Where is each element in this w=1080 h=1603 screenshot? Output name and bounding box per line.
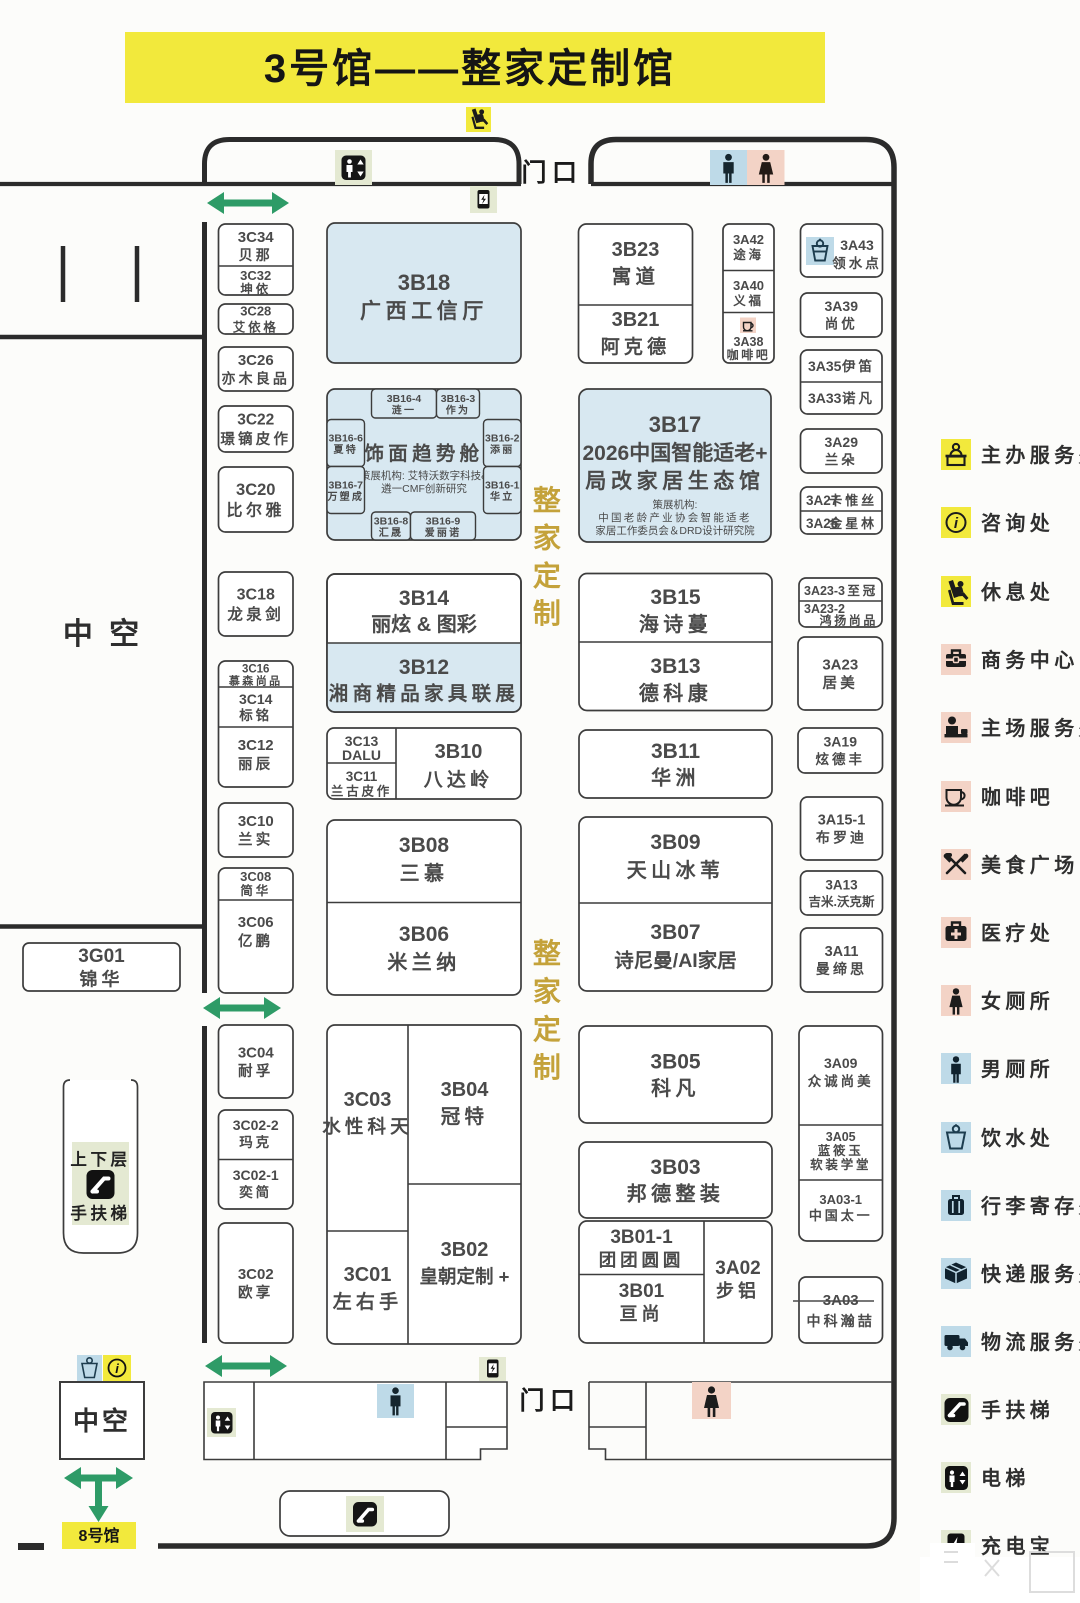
svg-text:3A40: 3A40	[733, 278, 764, 293]
svg-text:广西工信厅: 广西工信厅	[360, 299, 488, 323]
svg-text:3C02: 3C02	[238, 1266, 274, 1283]
svg-text:诗尼曼/AI家居: 诗尼曼/AI家居	[614, 949, 736, 972]
svg-text:诺凡: 诺凡	[842, 390, 875, 406]
svg-text:3B16-1: 3B16-1	[485, 480, 520, 492]
svg-text:丽辰: 丽辰	[238, 756, 273, 773]
svg-text:三慕: 三慕	[400, 862, 449, 885]
svg-text:2026中国智能适老+: 2026中国智能适老+	[583, 441, 768, 465]
svg-text:策展机构: 艾特沃数字科技&: 策展机构: 艾特沃数字科技&	[360, 469, 488, 482]
svg-text:3B01: 3B01	[619, 1281, 665, 1302]
svg-text:兰朵: 兰朵	[825, 452, 858, 468]
svg-text:蓝筱玉: 蓝筱玉	[818, 1143, 864, 1158]
svg-text:卡惟丝: 卡惟丝	[829, 493, 877, 508]
svg-text:爱丽诺: 爱丽诺	[425, 526, 462, 539]
svg-text:3C20: 3C20	[236, 481, 275, 499]
svg-text:科凡: 科凡	[651, 1076, 700, 1100]
svg-text:众诚尚美: 众诚尚美	[808, 1073, 874, 1089]
svg-text:龙泉剑: 龙泉剑	[226, 605, 284, 624]
svg-text:华洲: 华洲	[651, 765, 700, 789]
svg-text:3B13: 3B13	[650, 655, 700, 678]
svg-text:3B21: 3B21	[612, 309, 660, 331]
svg-text:整: 整	[533, 485, 567, 516]
svg-text:3C18: 3C18	[237, 587, 275, 604]
svg-text:饮水处: 饮水处	[980, 1126, 1054, 1150]
svg-text:亦木良品: 亦木良品	[222, 371, 290, 387]
svg-text:3C22: 3C22	[237, 412, 274, 429]
svg-text:制: 制	[533, 598, 567, 629]
svg-text:3A11: 3A11	[825, 944, 859, 960]
svg-text:3A23-3: 3A23-3	[804, 584, 845, 598]
svg-text:艾依格: 艾依格	[233, 320, 279, 335]
svg-text:邦德整装: 邦德整装	[627, 1181, 725, 1205]
svg-text:领水点: 领水点	[832, 255, 882, 271]
svg-text:休息处: 休息处	[980, 580, 1054, 604]
svg-text:3C06: 3C06	[238, 914, 274, 931]
svg-text:咨询处: 咨询处	[981, 511, 1054, 535]
svg-text:中空: 中空	[73, 1406, 131, 1436]
svg-text:简华: 简华	[240, 883, 271, 898]
svg-text:3C04: 3C04	[238, 1044, 275, 1061]
svg-text:3A35: 3A35	[808, 358, 842, 374]
svg-text:米兰纳: 米兰纳	[387, 950, 460, 974]
svg-text:吉米.沃克斯: 吉米.沃克斯	[809, 894, 875, 909]
svg-text:3B16-3: 3B16-3	[441, 393, 476, 405]
svg-text:3A02: 3A02	[715, 1258, 760, 1279]
svg-text:坤依: 坤依	[240, 282, 271, 297]
svg-text:3B07: 3B07	[650, 921, 700, 944]
svg-text:3B16-6: 3B16-6	[329, 433, 364, 445]
svg-text:3B14: 3B14	[399, 587, 450, 610]
svg-text:耐孚: 耐孚	[238, 1062, 273, 1080]
svg-text:3C34: 3C34	[238, 229, 275, 246]
svg-text:3C12: 3C12	[238, 737, 274, 754]
svg-text:天山冰苇: 天山冰苇	[627, 858, 725, 882]
svg-text:中科瀚喆: 中科瀚喆	[806, 1313, 874, 1329]
svg-text:3B04: 3B04	[441, 1079, 490, 1101]
svg-text:步铝: 步铝	[716, 1280, 760, 1301]
svg-text:3B10: 3B10	[435, 741, 483, 763]
svg-text:3A42: 3A42	[733, 232, 764, 247]
svg-text:行李寄存处: 行李寄存处	[980, 1194, 1080, 1218]
svg-text:3B02: 3B02	[441, 1239, 489, 1261]
svg-text:3C02-2: 3C02-2	[233, 1117, 279, 1133]
svg-text:手扶梯: 手扶梯	[70, 1203, 130, 1223]
svg-text:贝那: 贝那	[239, 247, 273, 263]
svg-text:3B03: 3B03	[650, 1156, 700, 1179]
svg-text:3C26: 3C26	[238, 352, 274, 369]
svg-text:丽炫 & 图彩: 丽炫 & 图彩	[371, 612, 477, 636]
svg-text:定: 定	[533, 1013, 567, 1045]
svg-text:商务中心: 商务中心	[981, 648, 1079, 672]
svg-text:水性科天: 水性科天	[322, 1116, 412, 1137]
svg-text:湘商精品家具联展: 湘商精品家具联展	[329, 682, 519, 705]
svg-text:亘尚: 亘尚	[620, 1303, 664, 1324]
svg-text:3B06: 3B06	[399, 923, 449, 946]
svg-text:兰古皮作: 兰古皮作	[331, 784, 392, 799]
svg-text:家居工作委员会＆DRD设计研究院: 家居工作委员会＆DRD设计研究院	[595, 524, 755, 537]
svg-text:添丽: 添丽	[490, 443, 514, 456]
svg-text:3B23: 3B23	[612, 239, 660, 261]
svg-text:德科康: 德科康	[639, 681, 712, 705]
svg-text:上下层: 上下层	[70, 1150, 130, 1169]
svg-text:定: 定	[533, 559, 567, 591]
svg-text:义福: 义福	[732, 293, 764, 308]
svg-text:软装学堂: 软装学堂	[810, 1157, 871, 1172]
svg-text:门口: 门口	[521, 158, 582, 187]
svg-text:男厕所: 男厕所	[981, 1058, 1054, 1081]
svg-text:左右手: 左右手	[333, 1290, 403, 1313]
svg-text:伊笛: 伊笛	[841, 358, 875, 374]
svg-text:3C28: 3C28	[240, 303, 271, 318]
svg-text:制: 制	[533, 1052, 567, 1083]
svg-text:欧享: 欧享	[238, 1284, 273, 1302]
svg-text:3B08: 3B08	[399, 834, 450, 857]
svg-text:布罗迪: 布罗迪	[816, 830, 867, 846]
svg-text:作为: 作为	[446, 403, 470, 416]
svg-text:3B16-2: 3B16-2	[485, 433, 520, 445]
svg-text:比尔雅: 比尔雅	[226, 501, 285, 520]
svg-text:DALU: DALU	[342, 747, 381, 763]
svg-text:3C03: 3C03	[344, 1089, 392, 1111]
svg-text:饰面趋势舱: 饰面趋势舱	[364, 442, 483, 465]
svg-text:慕森尚品: 慕森尚品	[228, 674, 283, 688]
svg-text:至冠: 至冠	[847, 584, 878, 598]
svg-text:皇朝定制 +: 皇朝定制 +	[420, 1266, 510, 1287]
svg-text:策展机构:: 策展机构:	[653, 498, 698, 511]
svg-text:3A23: 3A23	[822, 656, 858, 673]
svg-text:美食广场: 美食广场	[981, 853, 1079, 877]
svg-text:家: 家	[533, 522, 567, 554]
svg-text:华立: 华立	[490, 490, 514, 503]
svg-text:3C16: 3C16	[242, 664, 270, 676]
svg-text:金星林: 金星林	[828, 516, 877, 531]
svg-text:3A09: 3A09	[824, 1055, 858, 1071]
svg-text:锦华: 锦华	[80, 969, 124, 990]
svg-text:3A29: 3A29	[825, 434, 859, 450]
svg-text:咖啡吧: 咖啡吧	[981, 786, 1054, 809]
svg-text:物流服务处: 物流服务处	[981, 1330, 1080, 1354]
svg-text:3A19: 3A19	[824, 734, 858, 750]
svg-text:3B16-4: 3B16-4	[387, 393, 422, 405]
svg-text:3B15: 3B15	[650, 586, 701, 609]
svg-text:3A13: 3A13	[825, 877, 858, 892]
svg-text:主场服务处: 主场服务处	[981, 716, 1080, 740]
svg-text:海诗蔓: 海诗蔓	[639, 612, 712, 636]
svg-text:中国老龄产业协会智能适老: 中国老龄产业协会智能适老	[598, 511, 752, 524]
svg-text:3C11: 3C11	[346, 769, 378, 784]
svg-text:3C01: 3C01	[344, 1264, 392, 1286]
svg-text:3C08: 3C08	[240, 869, 271, 884]
svg-text:八达岭: 八达岭	[424, 768, 494, 791]
svg-text:3C14: 3C14	[239, 691, 273, 707]
svg-text:i: i	[115, 1361, 119, 1376]
svg-text:3A15-1: 3A15-1	[818, 813, 866, 829]
svg-text:3B05: 3B05	[650, 1051, 701, 1074]
svg-text:3C32: 3C32	[240, 268, 271, 283]
svg-text:3A05: 3A05	[826, 1130, 856, 1144]
svg-text:鸿扬尚品: 鸿扬尚品	[820, 613, 878, 628]
svg-text:3号馆——整家定制馆: 3号馆——整家定制馆	[264, 47, 676, 91]
svg-text:3B01-1: 3B01-1	[610, 1227, 673, 1248]
svg-text:3A03-1: 3A03-1	[819, 1192, 862, 1207]
svg-text:女厕所: 女厕所	[981, 989, 1054, 1013]
svg-text:主办服务处: 主办服务处	[981, 443, 1080, 467]
svg-text:充电宝: 充电宝	[981, 1534, 1054, 1558]
svg-text:快递服务处: 快递服务处	[981, 1262, 1080, 1286]
svg-text:玛克: 玛克	[239, 1134, 272, 1150]
svg-text:尚优: 尚优	[825, 316, 858, 332]
svg-text:3G01: 3G01	[78, 946, 125, 967]
svg-text:3A43: 3A43	[840, 237, 874, 253]
svg-text:3B16-8: 3B16-8	[374, 516, 409, 528]
svg-text:家: 家	[533, 975, 567, 1007]
svg-text:3A38: 3A38	[734, 335, 764, 349]
svg-text:寓道: 寓道	[612, 265, 660, 288]
svg-text:整: 整	[533, 938, 567, 969]
svg-text:3B11: 3B11	[651, 740, 700, 763]
svg-text:涟一: 涟一	[392, 403, 416, 416]
svg-text:手扶梯: 手扶梯	[981, 1398, 1054, 1422]
svg-text:3C10: 3C10	[238, 813, 274, 830]
svg-text:门口: 门口	[519, 1386, 580, 1415]
svg-text:冠特: 冠特	[441, 1106, 489, 1128]
svg-text:中国太一: 中国太一	[809, 1208, 873, 1223]
svg-text:阿克德: 阿克德	[601, 335, 671, 358]
svg-text:遴一CMF创新研究: 遴一CMF创新研究	[381, 482, 467, 495]
svg-text:团团圆圆: 团团圆圆	[599, 1250, 685, 1270]
svg-text:奕简: 奕简	[239, 1184, 272, 1200]
svg-text:亿鹏: 亿鹏	[238, 932, 273, 950]
svg-text:璟镝皮作: 璟镝皮作	[220, 430, 291, 448]
svg-text:居美: 居美	[823, 674, 858, 692]
svg-text:局改家居生态馆: 局改家居生态馆	[585, 469, 764, 493]
svg-text:3B09: 3B09	[650, 831, 700, 854]
svg-text:3B16-9: 3B16-9	[426, 516, 461, 528]
svg-text:3C02-1: 3C02-1	[233, 1167, 279, 1183]
svg-text:8号馆: 8号馆	[79, 1526, 120, 1545]
svg-text:3B16-7: 3B16-7	[329, 480, 364, 492]
svg-text:医疗处: 医疗处	[981, 921, 1054, 945]
svg-text:3A33: 3A33	[808, 390, 842, 406]
svg-text:3B18: 3B18	[398, 270, 451, 295]
svg-text:3B12: 3B12	[399, 656, 449, 679]
svg-text:中 空: 中 空	[63, 618, 143, 651]
svg-text:汇晟: 汇晟	[379, 526, 403, 539]
svg-text:标铭: 标铭	[238, 707, 272, 723]
svg-text:电梯: 电梯	[981, 1466, 1030, 1490]
svg-text:途海: 途海	[733, 247, 764, 262]
svg-text:3B17: 3B17	[649, 412, 702, 437]
svg-text:万塑成: 万塑成	[326, 490, 364, 503]
svg-text:夏特: 夏特	[333, 443, 358, 456]
svg-text:咖啡吧: 咖啡吧	[727, 347, 771, 362]
svg-text:曼缔思: 曼缔思	[816, 961, 867, 977]
svg-text:兰实: 兰实	[238, 831, 273, 849]
svg-text:炫德丰: 炫德丰	[816, 751, 866, 767]
svg-text:3A39: 3A39	[825, 298, 859, 314]
